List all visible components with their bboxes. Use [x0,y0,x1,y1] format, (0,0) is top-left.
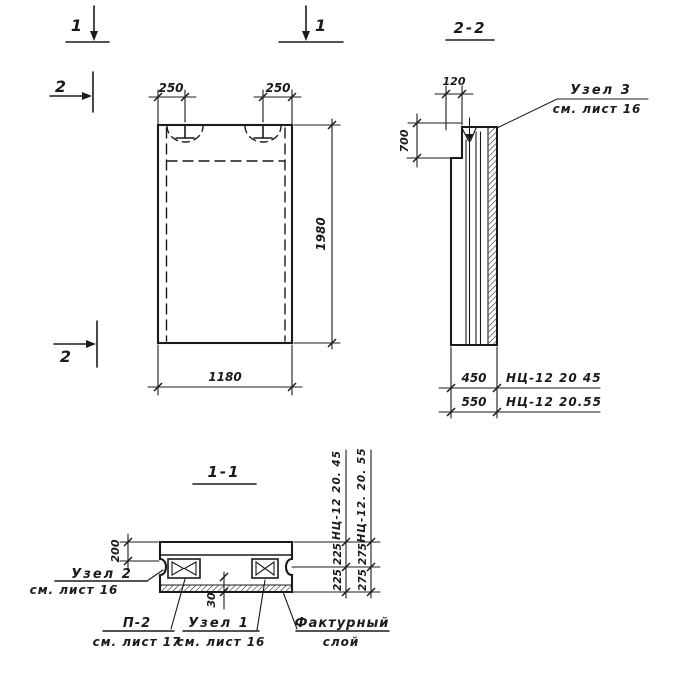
dim-250-left: 250 [158,81,183,95]
p2-ref: см. лист 17 [93,635,182,649]
dim-275-top: 275 [357,543,369,565]
node2-ref: см. лист 16 [30,583,119,597]
section-1-1: 1-1 200 30 [30,447,390,649]
dim-200-label: 200 [109,539,122,562]
cut-mark-2-top: 2 [50,72,93,112]
section-2-2: 2-2 Узел 3 см. лист 16 120 [398,19,648,418]
dim-120-label: 120 [443,75,466,88]
lifting-loop-left [167,126,203,142]
p2-label: П-2 [123,616,151,631]
facture-label-line1: Фактурный [295,616,390,631]
panel-outline [158,125,292,343]
cut-mark-1-right: 1 [279,6,343,42]
node2-callout: Узел 2 см. лист 16 [30,567,163,597]
cut-label-2a: 2 [55,77,66,96]
dim-width: 1180 [148,345,302,395]
node3-label: Узел 3 [570,83,632,98]
section-2-2-inner-lines [466,128,488,344]
facture-layer-hatch-2-2 [489,128,497,344]
dim-700-label: 700 [398,129,411,152]
keyway-box-left [168,559,200,578]
thickness-variants: 450 НЦ-12 20 45 550 НЦ-12 20.55 [439,347,602,418]
col1-mark: НЦ-12 20. 45 [331,450,343,540]
section-1-1-title: 1-1 [207,463,240,481]
dim-loops: 250 250 [149,81,301,124]
cut-label-1b: 1 [315,16,326,35]
node1-ref: см. лист 16 [177,635,266,649]
top-keyway-node3 [462,118,476,141]
cut-label-2b: 2 [60,347,71,366]
node3-ref: см. лист 16 [553,102,642,116]
drawing-sheet: 1 1 2 2 [0,0,700,700]
dim-1180: 1180 [208,370,241,384]
dim-550: 550 [461,395,486,409]
dim-225-bottom: 225 [332,569,344,591]
dim-200: 200 [109,534,159,569]
node3-callout: Узел 3 см. лист 16 [497,83,648,128]
hidden-lines [167,128,286,341]
dim-1980: 1980 [314,217,328,250]
node2-label: Узел 2 [71,567,133,582]
mark-nc-12-20-55: НЦ-12 20.55 [506,395,602,409]
dim-30-label: 30 [205,592,218,608]
panel-drawing: 1 1 2 2 [0,0,700,700]
node1-label: Узел 1 [188,616,250,631]
mark-nc-12-20-45: НЦ-12 20 45 [506,371,602,385]
dim-450: 450 [460,371,486,385]
keyway-box-right [252,559,278,578]
section-2-2-title: 2-2 [453,19,486,37]
front-view: 250 250 1180 1980 [148,81,340,395]
dim-250-right: 250 [265,81,290,95]
facture-label-line2: слой [323,635,360,649]
dim-120: 120 [435,75,473,130]
cut-label-1a: 1 [71,16,82,35]
dim-225-top: 225 [332,543,344,565]
lifting-loop-right [245,126,281,142]
dim-height: 1980 [294,119,340,349]
facture-callout: Фактурный слой [283,592,389,649]
cut-mark-1-left: 1 [66,6,109,42]
dim-275-bottom: 275 [357,569,369,591]
cut-mark-2-bottom: 2 [54,321,97,367]
variant-dim-columns: НЦ-12 20. 45 НЦ-12. 20. 55 225 225 275 2… [292,447,380,598]
col2-mark: НЦ-12. 20. 55 [356,447,368,542]
